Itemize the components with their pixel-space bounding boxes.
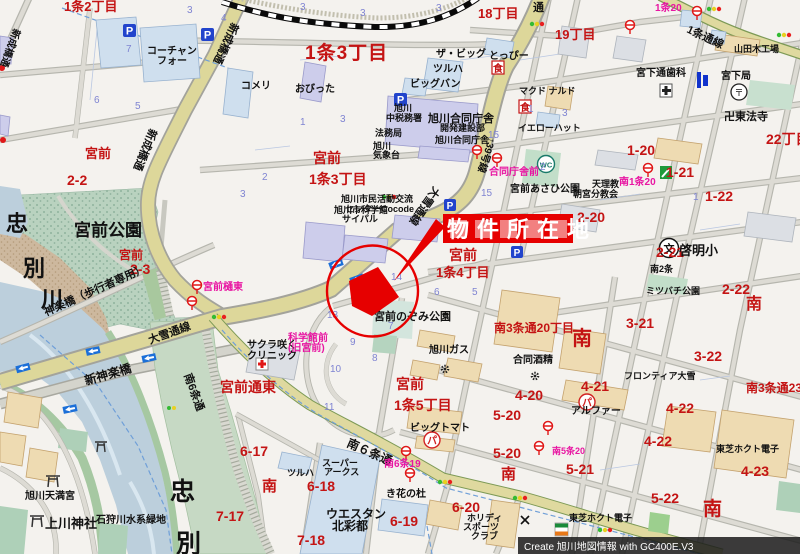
- svg-text:ミツバチ公園: ミツバチ公園: [646, 286, 700, 296]
- svg-text:宮前樋東: 宮前樋東: [203, 280, 243, 293]
- svg-text:Create 旭川地図情報 with GC400E.V3: Create 旭川地図情報 with GC400E.V3: [524, 540, 694, 553]
- svg-text:5: 5: [472, 287, 478, 298]
- svg-text:7-17: 7-17: [216, 508, 244, 524]
- svg-text:ザ・ビッグ: ザ・ビッグ: [436, 47, 486, 60]
- svg-text:3: 3: [340, 114, 346, 125]
- svg-text:5: 5: [135, 101, 141, 112]
- svg-text:フォー: フォー: [157, 55, 187, 67]
- svg-text:宮下局: 宮下局: [721, 69, 751, 82]
- svg-text:アルファー: アルファー: [571, 405, 621, 417]
- svg-text:6-18: 6-18: [307, 478, 335, 494]
- svg-text:6-19: 6-19: [390, 513, 418, 529]
- svg-text:1条20: 1条20: [655, 1, 682, 14]
- svg-text:18丁目: 18丁目: [478, 6, 518, 21]
- svg-text:(旧宮前): (旧宮前): [288, 341, 325, 354]
- svg-text:1: 1: [528, 104, 534, 115]
- svg-text:南: 南: [746, 294, 762, 313]
- svg-text:3: 3: [187, 5, 193, 16]
- svg-text:6: 6: [94, 95, 100, 106]
- svg-text:サイパル: サイパル: [342, 213, 378, 224]
- svg-text:啓明小: 啓明小: [679, 243, 718, 258]
- svg-text:開発建設部: 開発建設部: [440, 122, 485, 133]
- svg-text:3: 3: [240, 189, 246, 200]
- svg-text:物件所在地: 物件所在地: [447, 217, 597, 242]
- svg-text:1条3丁目: 1条3丁目: [309, 171, 367, 187]
- svg-text:宮前: 宮前: [396, 376, 424, 392]
- svg-text:宮前: 宮前: [85, 146, 111, 161]
- svg-text:2: 2: [262, 172, 268, 183]
- svg-text:おびった: おびった: [295, 82, 335, 95]
- svg-text:気象台: 気象台: [373, 149, 400, 160]
- svg-text:2-22: 2-22: [722, 281, 750, 297]
- svg-text:南3条通23: 南3条通23: [746, 380, 800, 395]
- svg-text:南2条: 南2条: [650, 263, 674, 274]
- svg-text:3-22: 3-22: [694, 348, 722, 364]
- svg-text:旭川天満宮: 旭川天満宮: [24, 489, 75, 502]
- svg-text:忠: 忠: [6, 211, 28, 236]
- svg-text:石狩川水系緑地: 石狩川水系緑地: [95, 513, 166, 526]
- svg-text:15: 15: [481, 188, 493, 199]
- svg-text:卍東法寺: 卍東法寺: [724, 109, 768, 123]
- svg-text:旭川: 旭川: [393, 102, 412, 113]
- svg-text:ツルハ: ツルハ: [287, 468, 314, 478]
- svg-text:P: P: [126, 26, 133, 38]
- svg-text:南: 南: [262, 477, 277, 495]
- svg-text:宮前通東: 宮前通東: [220, 379, 276, 395]
- svg-text:宮前: 宮前: [119, 247, 143, 262]
- svg-text:8: 8: [372, 353, 378, 364]
- svg-text:合同酒精: 合同酒精: [512, 353, 553, 366]
- svg-text:5-22: 5-22: [651, 490, 679, 506]
- svg-text:宮前: 宮前: [313, 150, 341, 166]
- svg-text:1-20: 1-20: [627, 142, 655, 158]
- svg-text:3: 3: [436, 3, 442, 14]
- svg-text:ビッグバン: ビッグバン: [410, 77, 461, 90]
- svg-text:フロンティア大雪: フロンティア大雪: [624, 370, 695, 381]
- svg-text:4-22: 4-22: [644, 433, 672, 449]
- svg-text:3-21: 3-21: [626, 315, 654, 331]
- svg-text:北彩都: 北彩都: [332, 518, 368, 533]
- svg-text:パ: パ: [427, 435, 437, 447]
- svg-text:別: 別: [176, 530, 201, 554]
- svg-text:南: 南: [572, 327, 592, 350]
- svg-text:1: 1: [300, 117, 306, 128]
- svg-text:22丁目: 22丁目: [766, 131, 800, 147]
- svg-text:6-17: 6-17: [240, 443, 268, 459]
- svg-text:山田木工場: 山田木工場: [734, 43, 779, 54]
- svg-text:マクド ナルド: マクド ナルド: [519, 86, 576, 96]
- svg-text:東芝ホクト電子: 東芝ホクト電子: [716, 443, 779, 454]
- svg-text:ビッグトマト: ビッグトマト: [410, 421, 470, 434]
- svg-text:11: 11: [324, 402, 335, 413]
- svg-text:3: 3: [360, 8, 366, 19]
- svg-text:1-21: 1-21: [666, 164, 694, 180]
- svg-text:南1条20: 南1条20: [619, 175, 656, 188]
- svg-text:クラブ: クラブ: [471, 530, 498, 541]
- svg-text:忠: 忠: [170, 477, 195, 506]
- svg-text:6: 6: [434, 287, 440, 298]
- svg-text:1条3丁目: 1条3丁目: [305, 41, 388, 64]
- svg-text:旭川市民活動交流: 旭川市民活動交流: [340, 193, 413, 204]
- svg-text:2-2: 2-2: [67, 172, 87, 188]
- svg-text:上川神社: 上川神社: [45, 516, 97, 531]
- svg-text:き花の杜: き花の杜: [386, 487, 426, 500]
- svg-text:19丁目: 19丁目: [555, 27, 595, 42]
- svg-text:1条4丁目: 1条4丁目: [436, 265, 489, 280]
- svg-text:1: 1: [693, 192, 699, 203]
- svg-text:10: 10: [330, 364, 342, 375]
- svg-text:コメリ: コメリ: [241, 80, 271, 92]
- svg-text:4-23: 4-23: [741, 463, 769, 479]
- svg-text:中税務署: 中税務署: [386, 112, 422, 123]
- svg-text:南6条19: 南6条19: [384, 457, 421, 470]
- svg-text:1条2丁目: 1条2丁目: [64, 0, 117, 14]
- svg-text:〒: 〒: [734, 88, 743, 98]
- svg-text:4-21: 4-21: [581, 378, 609, 394]
- svg-text:法務局: 法務局: [375, 127, 402, 138]
- svg-text:南3条通20丁目: 南3条通20丁目: [494, 320, 574, 335]
- svg-text:5-20: 5-20: [493, 445, 521, 461]
- svg-text:15: 15: [488, 130, 500, 141]
- svg-text:南: 南: [501, 465, 516, 483]
- svg-text:1-22: 1-22: [705, 188, 733, 204]
- svg-text:7: 7: [126, 44, 132, 55]
- svg-text:ツルハ: ツルハ: [433, 63, 463, 75]
- svg-text:4: 4: [221, 13, 227, 24]
- svg-text:食: 食: [492, 62, 504, 75]
- svg-text:イエローハット: イエローハット: [518, 123, 581, 133]
- svg-text:アークス: アークス: [324, 467, 359, 477]
- svg-text:4-20: 4-20: [515, 387, 543, 403]
- svg-text:9: 9: [350, 337, 356, 348]
- svg-text:P: P: [447, 201, 454, 212]
- svg-text:朝宮分教会: 朝宮分教会: [573, 188, 619, 199]
- svg-text:宮下通歯科: 宮下通歯科: [636, 66, 686, 79]
- svg-text:旭川合同庁舎: 旭川合同庁舎: [434, 134, 490, 145]
- svg-text:南5条20: 南5条20: [552, 445, 585, 456]
- svg-text:3: 3: [300, 2, 306, 13]
- svg-text:宮前公園: 宮前公園: [74, 220, 142, 240]
- svg-text:P: P: [514, 248, 521, 259]
- svg-text:天理教: 天理教: [592, 178, 620, 189]
- svg-text:とっぴー: とっぴー: [489, 49, 529, 62]
- svg-text:通: 通: [533, 1, 544, 14]
- svg-text:宮前あさひ公園: 宮前あさひ公園: [510, 182, 580, 195]
- svg-text:3: 3: [562, 108, 568, 119]
- svg-text:4-22: 4-22: [666, 400, 694, 416]
- svg-text:南: 南: [703, 498, 722, 520]
- svg-text:宮前: 宮前: [449, 247, 477, 263]
- svg-text:2: 2: [540, 162, 546, 173]
- svg-text:別: 別: [23, 256, 45, 281]
- svg-text:P: P: [204, 30, 211, 42]
- svg-text:1条5丁目: 1条5丁目: [394, 397, 452, 413]
- svg-text:7-18: 7-18: [297, 532, 325, 548]
- svg-text:東芝ホクト電子: 東芝ホクト電子: [569, 512, 632, 523]
- svg-text:合同庁舎前: 合同庁舎前: [488, 165, 539, 178]
- svg-text:5-21: 5-21: [566, 461, 594, 477]
- svg-text:5-20: 5-20: [493, 407, 521, 423]
- svg-text:旭川ガス: 旭川ガス: [428, 343, 469, 356]
